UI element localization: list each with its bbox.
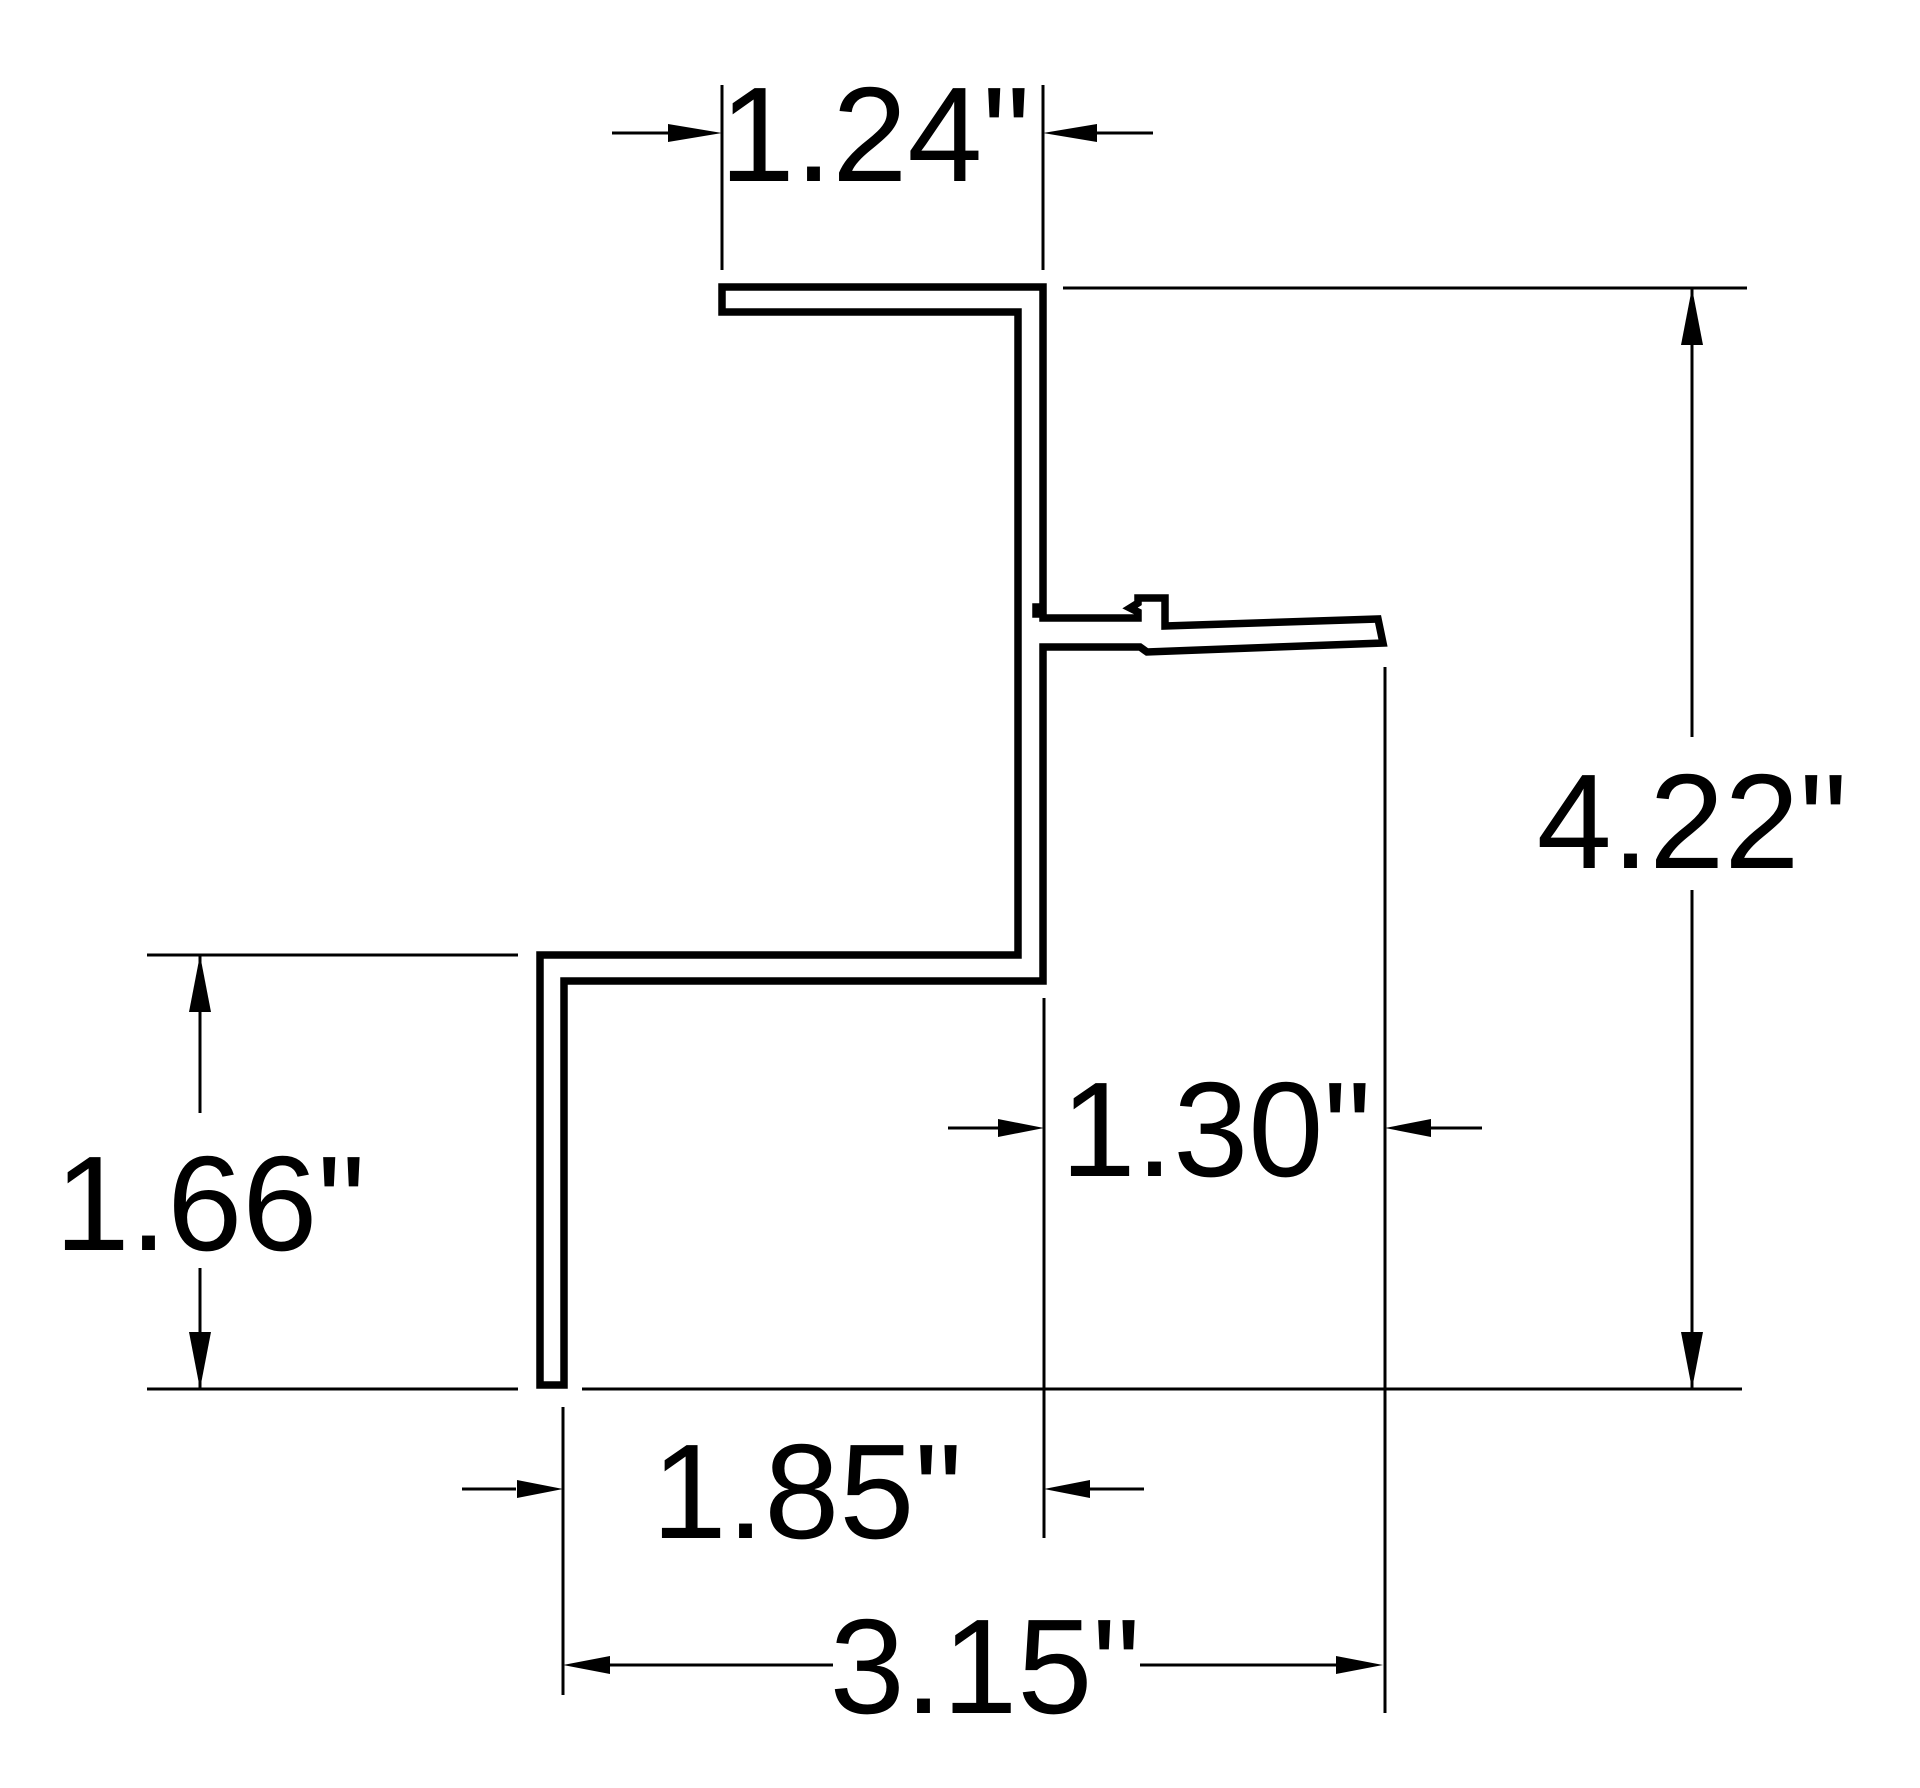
arrowhead-right-icon [998, 1119, 1044, 1137]
arrowhead-up-icon [189, 955, 211, 1012]
extrusion-profile-outline [540, 287, 1383, 1385]
arrowhead-left-icon [1043, 124, 1097, 142]
dim-label-overall-height: 4.22" [1537, 746, 1848, 897]
arrowhead-left-icon [563, 1656, 610, 1674]
dim-label-lower-width: 1.85" [652, 1416, 963, 1567]
arrowhead-up-icon [1681, 288, 1703, 345]
arrowhead-down-icon [1681, 1332, 1703, 1389]
dim-overall-width: 3.15" [563, 1591, 1383, 1742]
arrowhead-right-icon [1336, 1656, 1383, 1674]
dim-label-overall-width: 3.15" [830, 1591, 1141, 1742]
arrowhead-left-icon [1385, 1119, 1431, 1137]
dim-label-left-leg-height: 1.66" [55, 1128, 366, 1279]
technical-drawing: 1.24" 4.22" 1.66" 1.30 [0, 0, 1920, 1788]
drawing-canvas: 1.24" 4.22" 1.66" 1.30 [0, 0, 1920, 1788]
arrowhead-down-icon [189, 1332, 211, 1389]
arrowhead-right-icon [517, 1480, 563, 1498]
dim-label-top-width: 1.24" [720, 59, 1031, 210]
arrowhead-right-icon [668, 124, 722, 142]
dim-overall-height: 4.22" [1063, 288, 1847, 1389]
dim-label-pocket-width: 1.30" [1061, 1054, 1372, 1205]
dim-top-width: 1.24" [612, 59, 1153, 270]
arrowhead-left-icon [1044, 1480, 1090, 1498]
dim-left-leg-height: 1.66" [55, 955, 518, 1389]
